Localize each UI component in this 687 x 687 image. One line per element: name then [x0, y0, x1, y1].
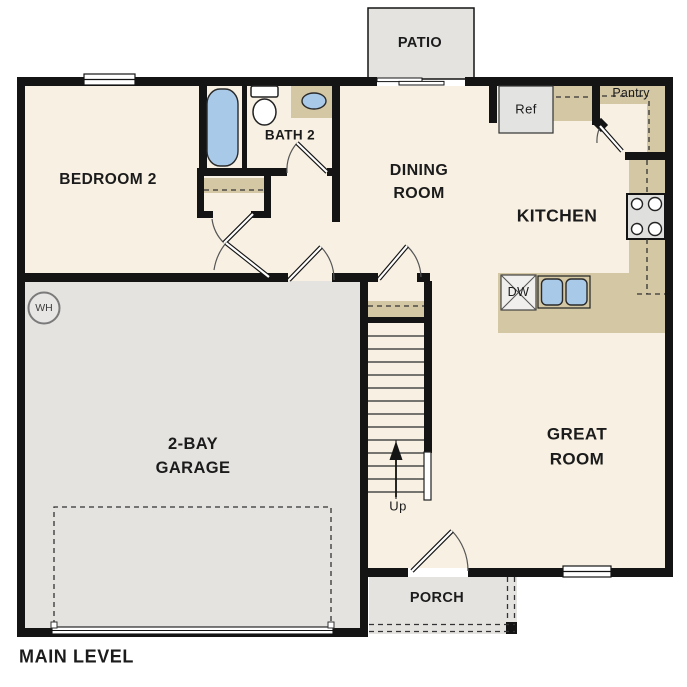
dining-room-label-line1: DINING — [390, 159, 448, 182]
bedroom-window — [84, 74, 135, 85]
dishwasher-label: DW — [508, 285, 530, 299]
plan-title: MAIN LEVEL — [19, 647, 134, 668]
dining-room-label: DINING ROOM — [390, 159, 448, 205]
great-room-window — [563, 566, 611, 577]
bathtub — [207, 89, 238, 166]
great-room-label-line1: GREAT — [547, 422, 607, 447]
garage-door-track-right — [328, 622, 334, 628]
pantry-label: Pantry — [612, 86, 649, 100]
bedroom2-label: BEDROOM 2 — [59, 171, 156, 189]
great-room-label: GREAT ROOM — [547, 422, 607, 471]
kitchen-label: KITCHEN — [517, 206, 598, 227]
stair-railing — [424, 452, 431, 500]
toilet — [251, 86, 278, 125]
porch-label: PORCH — [410, 590, 464, 606]
garage-label-line2: GARAGE — [156, 457, 231, 481]
water-heater-label: WH — [35, 302, 53, 314]
great-room-label-line2: ROOM — [547, 447, 607, 472]
refrigerator-label: Ref — [515, 102, 536, 117]
patio-label: PATIO — [398, 35, 442, 51]
garage-door-track-left — [51, 622, 57, 628]
garage-label-line1: 2-BAY — [156, 433, 231, 457]
garage-label: 2-BAY GARAGE — [156, 433, 231, 481]
stove — [627, 194, 665, 239]
dining-room-label-line2: ROOM — [390, 182, 448, 205]
garage-door — [52, 627, 333, 634]
floorplan-drawing — [0, 0, 687, 687]
kitchen-sink — [538, 276, 590, 308]
pantry-floor — [600, 104, 647, 152]
stairs-up-label: Up — [389, 499, 406, 514]
bathroom-sink — [302, 93, 326, 109]
bath2-label: BATH 2 — [265, 128, 315, 143]
floor-plan: BEDROOM 2 BATH 2 DINING ROOM KITCHEN GRE… — [0, 0, 687, 687]
